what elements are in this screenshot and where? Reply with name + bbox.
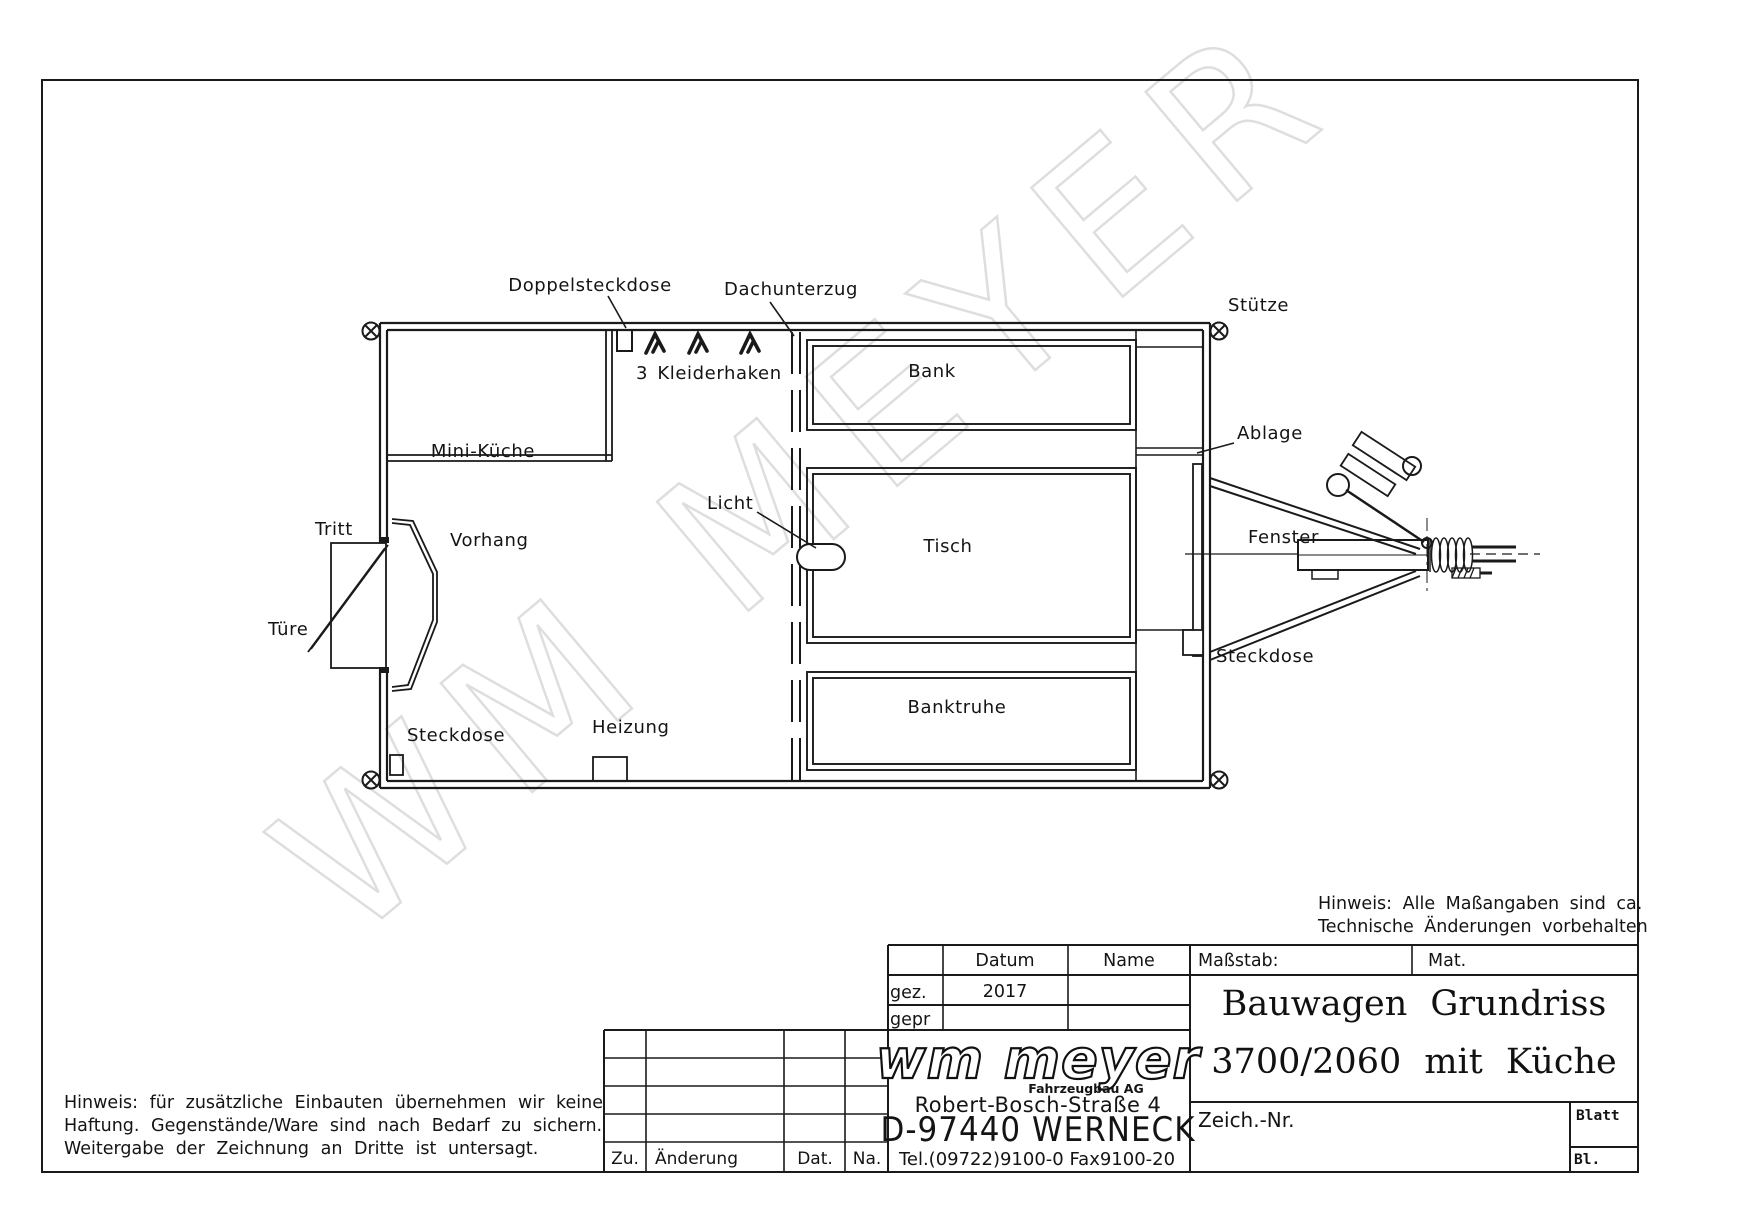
drawing-title-line2: 3700/2060 mit Küche <box>1211 1042 1616 1082</box>
step-tritt-symbol <box>331 543 386 668</box>
door-leaf <box>308 545 388 652</box>
note-line: Hinweis: für zusätzliche Einbauten übern… <box>64 1092 603 1115</box>
coat-hook-icons <box>646 334 759 353</box>
label-vorhang: Vorhang <box>450 532 529 550</box>
note-line: Hinweis: Alle Maßangaben sind ca. <box>1318 893 1648 916</box>
cell-zeich-nr: Zeich.-Nr. <box>1198 1108 1295 1132</box>
hook-icon <box>646 334 664 353</box>
drawing-title-line1: Bauwagen Grundriss <box>1222 984 1607 1024</box>
label-steckdose-left: Steckdose <box>407 727 505 745</box>
label-tisch: Tisch <box>923 538 972 556</box>
cell-bl: Bl. <box>1574 1152 1600 1168</box>
label-steckdose-right: Steckdose <box>1216 648 1314 666</box>
label-bank: Bank <box>908 363 956 381</box>
label-dachunterzug: Dachunterzug <box>724 281 858 299</box>
label-fenster: Fenster <box>1248 529 1319 547</box>
support-icon <box>1211 323 1228 340</box>
drawing-sheet: WM MEYER <box>0 0 1755 1232</box>
label-banktruhe: Banktruhe <box>908 699 1007 717</box>
cell-gez: gez. <box>890 983 927 1003</box>
rev-col-dat: Dat. <box>797 1149 833 1169</box>
label-kleiderhaken: 3 Kleiderhaken <box>636 365 782 383</box>
rev-col-aenderung: Änderung <box>655 1149 738 1169</box>
header-mat: Mat. <box>1428 951 1466 971</box>
note-bottom-left: Hinweis: für zusätzliche Einbauten übern… <box>64 1092 603 1161</box>
label-mini-kueche: Mini-Küche <box>431 443 535 461</box>
cell-gepr: gepr <box>890 1010 930 1030</box>
header-name: Name <box>1103 951 1155 971</box>
window-symbol <box>1193 464 1202 656</box>
company-phone: Tel.(09722)9100-0 Fax9100-20 <box>899 1149 1175 1170</box>
watermark-text: WM MEYER <box>234 0 1376 980</box>
label-heizung: Heizung <box>592 719 670 737</box>
note-line: Haftung. Gegenstände/Ware sind nach Beda… <box>64 1115 603 1138</box>
label-tuere: Türe <box>268 621 308 639</box>
label-licht: Licht <box>707 495 753 513</box>
label-stuetze: Stütze <box>1228 297 1289 315</box>
light-symbol <box>797 544 845 570</box>
label-ablage: Ablage <box>1237 425 1303 443</box>
right-socket-symbol <box>1183 630 1203 655</box>
bench-chest-banktruhe <box>807 672 1136 770</box>
note-top-right: Hinweis: Alle Maßangaben sind ca. Techni… <box>1318 893 1648 939</box>
drawbar-hitch <box>1185 432 1540 660</box>
hook-icon <box>741 334 759 353</box>
rev-col-zu: Zu. <box>611 1149 639 1169</box>
label-doppelsteckdose: Doppelsteckdose <box>508 277 672 295</box>
company-city: D-97440 WERNECK <box>880 1111 1195 1150</box>
note-line: Weitergabe der Zeichnung an Dritte ist u… <box>64 1138 603 1161</box>
hook-icon <box>689 334 707 353</box>
header-datum: Datum <box>975 951 1034 971</box>
cell-blatt: Blatt <box>1576 1108 1620 1124</box>
support-icon <box>1211 772 1228 789</box>
cell-gez-datum: 2017 <box>983 982 1028 1002</box>
note-line: Technische Änderungen vorbehalten <box>1318 916 1648 939</box>
double-socket-symbol <box>617 330 632 351</box>
label-tritt: Tritt <box>315 521 353 539</box>
support-icon <box>363 323 380 340</box>
rev-col-na: Na. <box>853 1149 882 1169</box>
hitch-bellows <box>1430 538 1473 572</box>
header-massstab: Maßstab: <box>1198 951 1279 971</box>
door-jamb-stubs <box>379 537 389 673</box>
